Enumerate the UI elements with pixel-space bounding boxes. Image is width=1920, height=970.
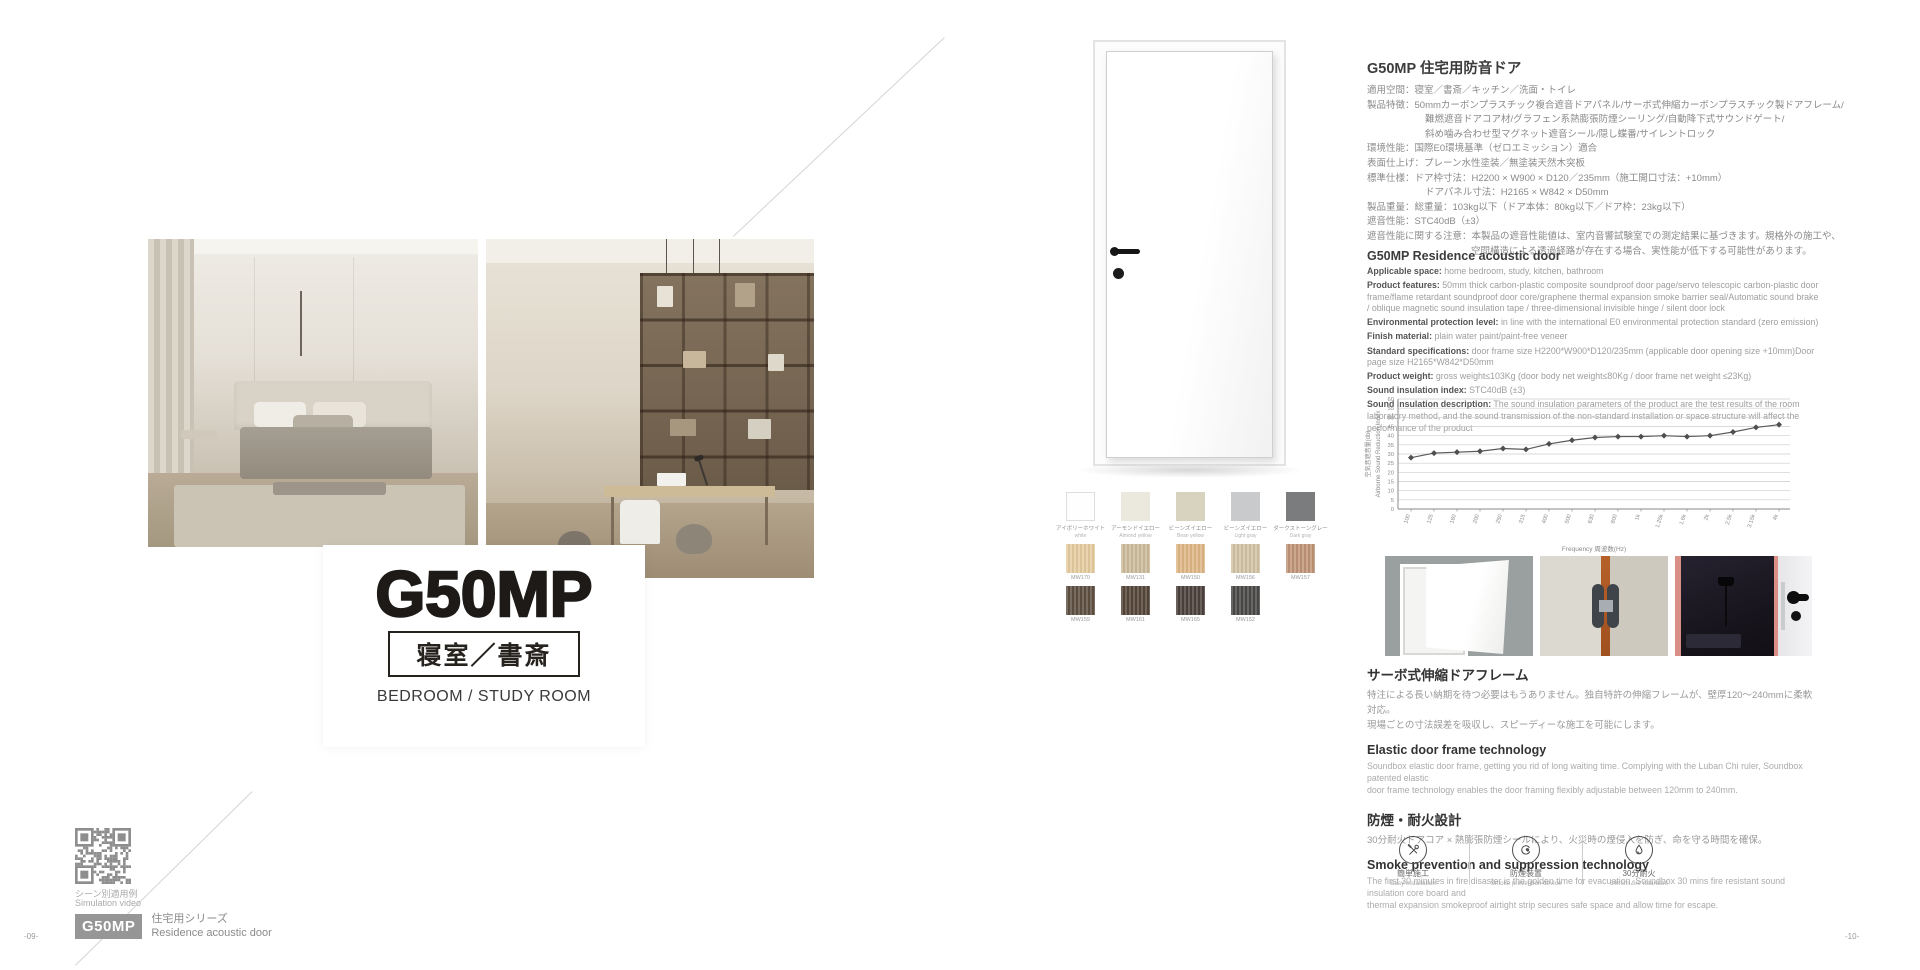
section-body: Soundbox elastic door frame, getting you… xyxy=(1367,760,1819,796)
wall-sconce xyxy=(300,291,302,356)
swatch: MW152 xyxy=(1218,586,1273,623)
door-handle xyxy=(1790,594,1809,601)
svg-text:1.25k: 1.25k xyxy=(1655,514,1665,529)
swatch: ビーンズイエローBean yellow xyxy=(1163,492,1218,539)
curtain xyxy=(148,239,194,479)
section-heading: 防煙・耐火設計 xyxy=(1367,809,1819,829)
stool xyxy=(676,524,712,555)
swatch: ダークストーングレーDark gray xyxy=(1273,492,1328,539)
rug xyxy=(174,485,464,547)
spec-line-jp: 製品特徴：50mmカーボンプラスチック複合遮音ドアパネル/サーボ式伸縮カーボンプ… xyxy=(1367,99,1819,114)
svg-text:315: 315 xyxy=(1518,514,1527,525)
spec-line-jp: 難燃遮音ドアコア材/グラフェン系熱膨張防煙シーリング/自動降下式サウンドゲート/ xyxy=(1367,113,1819,128)
spec-line-jp: 適用空間：寝室／書斎／キッチン／洗面・トイレ xyxy=(1367,84,1819,99)
feature-flame: 30分耐火30mins fire retardant xyxy=(1593,836,1685,887)
spec-line-jp: 表面仕上げ：プレーン水性塗装／無塗装天然木突板 xyxy=(1367,157,1819,172)
swatch-grid: アイボリーホワイトwhiteアーモンドイエローAlmond yellowビーンズ… xyxy=(1053,492,1331,628)
svg-text:4k: 4k xyxy=(1772,514,1780,522)
svg-text:100: 100 xyxy=(1403,514,1412,525)
door-ajar-photo xyxy=(1385,556,1533,656)
svg-text:空気音遮音量(db): 空気音遮音量(db) xyxy=(1364,431,1372,478)
svg-text:25: 25 xyxy=(1388,461,1394,467)
svg-text:55: 55 xyxy=(1388,406,1394,412)
laptop xyxy=(657,473,687,487)
svg-text:20: 20 xyxy=(1388,470,1394,476)
svg-text:35: 35 xyxy=(1388,443,1394,449)
room-type-jp: 寝室／書斎 xyxy=(388,631,579,677)
divider xyxy=(1469,838,1470,885)
door-panel xyxy=(1106,51,1273,458)
spec-line-jp: ドアパネル寸法：H2165 × W842 × D50mm xyxy=(1367,186,1819,201)
svg-text:630: 630 xyxy=(1587,514,1596,525)
page-number-right: -10- xyxy=(1845,932,1859,941)
section-body: 特注による長い納期を待つ必要はもうありません。独自特許の伸縮フレームが、壁厚12… xyxy=(1367,688,1819,733)
room-type-en: BEDROOM / STUDY ROOM xyxy=(323,688,645,706)
spec-line-jp: 標準仕様：ドア枠寸法：H2200 × W900 × D120／235mm（施工開… xyxy=(1367,172,1819,187)
spec-line-en: Standard specifications: door frame size… xyxy=(1367,346,1819,369)
svg-text:250: 250 xyxy=(1495,514,1504,525)
spec-line-jp: 遮音性能に関する注意：本製品の遮音性能値は、室内音響試験室での測定結果に基づきま… xyxy=(1367,230,1819,245)
svg-text:400: 400 xyxy=(1541,514,1550,525)
spec-line-en: Environmental protection level: in line … xyxy=(1367,317,1819,329)
specs-jp-heading: G50MP 住宅用防音ドア xyxy=(1367,57,1819,78)
svg-text:2k: 2k xyxy=(1703,514,1711,522)
chair xyxy=(620,500,659,544)
feature-tools: 簡単施工Easy installation xyxy=(1367,836,1459,887)
swatch: アイボリーホワイトwhite xyxy=(1053,492,1108,539)
swatch: MW170 xyxy=(1053,544,1108,581)
swatch: ビーンズイエローLight gray xyxy=(1218,492,1273,539)
swatch: MW157 xyxy=(1273,544,1328,581)
svg-text:10: 10 xyxy=(1388,489,1394,495)
door-handle xyxy=(1114,249,1140,254)
smoke-device-icon xyxy=(1512,836,1540,864)
model-title: G50MP xyxy=(323,559,645,629)
svg-text:50: 50 xyxy=(1388,415,1394,421)
svg-text:5: 5 xyxy=(1391,498,1394,504)
spec-line-en: Finish material: plain water paint/paint… xyxy=(1367,331,1819,343)
catalog-spread: G50MP 寝室／書斎 BEDROOM / STUDY ROOM シーン別適用例… xyxy=(0,0,1920,970)
door-lock-knob xyxy=(1113,268,1124,279)
series-name-jp: 住宅用シリーズ xyxy=(151,913,227,925)
handle-lock-photo xyxy=(1675,556,1812,656)
svg-text:0: 0 xyxy=(1391,507,1394,513)
swatch: MW159 xyxy=(1053,586,1108,623)
section-heading: Elastic door frame technology xyxy=(1367,743,1819,757)
detail-photo-strip xyxy=(1385,556,1812,656)
swatch: MW165 xyxy=(1163,586,1218,623)
spec-line-jp: 環境性能：国際E0環境基準（ゼロエミッション）適合 xyxy=(1367,142,1819,157)
spec-line-jp: 遮音性能：STC40dB（±3） xyxy=(1367,215,1819,230)
svg-text:3.15k: 3.15k xyxy=(1747,514,1757,529)
spec-line-jp: 製品重量：総重量：103kg以下（ドア本体：80kg以下／ドア枠：23kg以下） xyxy=(1367,201,1819,216)
diagonal-rule-top xyxy=(733,37,945,237)
swatch: アーモンドイエローAlmond yellow xyxy=(1108,492,1163,539)
sound-reduction-chart: 0510152025303540455055601001251602002503… xyxy=(1358,391,1816,556)
door-product-photo xyxy=(1093,40,1286,466)
tools-icon xyxy=(1399,836,1427,864)
page-number-left: -09- xyxy=(24,932,38,941)
svg-text:800: 800 xyxy=(1610,514,1619,525)
svg-text:Frequency 周波数(Hz): Frequency 周波数(Hz) xyxy=(1562,544,1626,553)
qr-caption-en: Simulation video xyxy=(75,898,141,908)
svg-text:160: 160 xyxy=(1449,514,1458,525)
section-heading: サーボ式伸縮ドアフレーム xyxy=(1367,664,1819,684)
feature-smoke-device: 防煙装置Smoke prevention device xyxy=(1480,836,1572,887)
series-names: 住宅用シリーズ Residence acoustic door xyxy=(151,913,271,940)
bedroom-photo xyxy=(148,239,478,547)
series-code-badge: G50MP xyxy=(75,914,142,939)
specs-jp-lines: 適用空間：寝室／書斎／キッチン／洗面・トイレ製品特徴：50mmカーボンプラスチッ… xyxy=(1367,84,1819,259)
invisible-hinge-photo xyxy=(1540,556,1669,656)
spec-line-en: Product weight: gross weight≤103Kg (door… xyxy=(1367,371,1819,383)
spec-line-en: Applicable space: home bedroom, study, k… xyxy=(1367,266,1819,278)
svg-text:200: 200 xyxy=(1472,514,1481,525)
divider xyxy=(1582,838,1583,885)
spec-line-jp: 斜め噛み合わせ型マグネット遮音シール/隠し蝶番/サイレントロック xyxy=(1367,128,1819,143)
swatch: MW150 xyxy=(1163,544,1218,581)
bed-blanket xyxy=(240,427,431,479)
svg-text:30: 30 xyxy=(1388,452,1394,458)
svg-text:15: 15 xyxy=(1388,480,1394,486)
svg-text:45: 45 xyxy=(1388,425,1394,431)
svg-text:Airborne Sound Reduction Index: Airborne Sound Reduction Index xyxy=(1376,411,1382,498)
svg-text:2.5k: 2.5k xyxy=(1725,514,1734,526)
specs-en-heading: G50MP Residence acoustic door xyxy=(1367,249,1819,263)
svg-text:500: 500 xyxy=(1564,514,1573,525)
svg-text:60: 60 xyxy=(1388,397,1394,403)
series-name-en: Residence acoustic door xyxy=(151,927,271,939)
swatch: MW131 xyxy=(1108,544,1163,581)
series-tag: G50MP 住宅用シリーズ Residence acoustic door xyxy=(75,913,272,940)
qr-code xyxy=(75,828,131,884)
svg-text:1.6k: 1.6k xyxy=(1679,514,1688,526)
specs-jp-block: G50MP 住宅用防音ドア 適用空間：寝室／書斎／キッチン／洗面・トイレ製品特徴… xyxy=(1367,57,1819,259)
feature-icons-row: 簡単施工Easy installation防煙装置Smoke preventio… xyxy=(1367,836,1685,887)
svg-text:40: 40 xyxy=(1388,434,1394,440)
desk xyxy=(604,486,775,496)
swatch: MW156 xyxy=(1218,544,1273,581)
title-card: G50MP 寝室／書斎 BEDROOM / STUDY ROOM xyxy=(323,545,645,747)
study-photo xyxy=(486,239,814,578)
flame-icon xyxy=(1625,836,1653,864)
swatch: MW161 xyxy=(1108,586,1163,623)
svg-text:125: 125 xyxy=(1426,514,1435,525)
svg-text:1k: 1k xyxy=(1634,514,1642,522)
spec-line-en: Product features: 50mm thick carbon-plas… xyxy=(1367,280,1819,315)
